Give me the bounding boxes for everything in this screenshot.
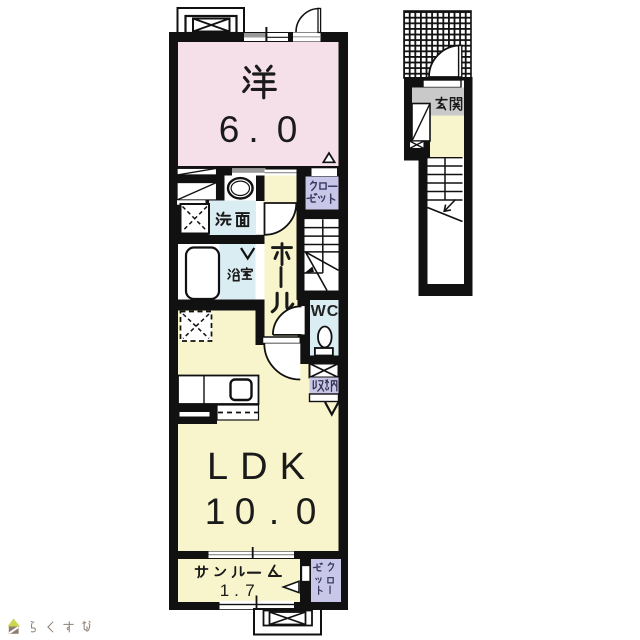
svg-text:7: 7: [245, 581, 254, 600]
svg-text:1: 1: [220, 581, 229, 600]
svg-text:LDK: LDK: [207, 446, 317, 488]
svg-text:.: .: [234, 581, 239, 600]
svg-text:.: .: [248, 109, 258, 150]
svg-text:0: 0: [277, 109, 298, 150]
svg-text:WC: WC: [311, 303, 340, 320]
svg-text:0: 0: [296, 491, 317, 532]
svg-text:0: 0: [235, 491, 256, 532]
svg-text:1: 1: [205, 491, 226, 532]
svg-text:6: 6: [219, 109, 240, 150]
svg-text:.: .: [269, 491, 279, 532]
